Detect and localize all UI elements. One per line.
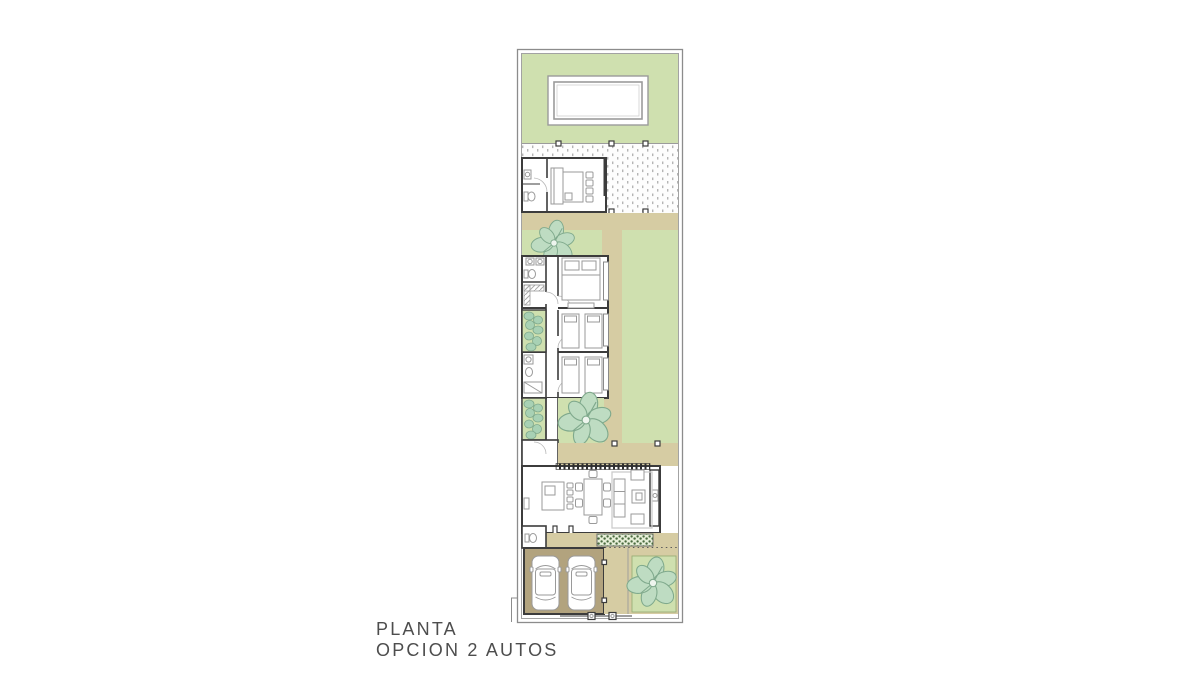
car-2 bbox=[566, 556, 597, 610]
window bbox=[604, 358, 609, 390]
pool bbox=[548, 76, 648, 125]
column bbox=[609, 141, 614, 146]
column bbox=[655, 441, 660, 446]
post bbox=[602, 560, 607, 565]
floor-plan-drawing bbox=[0, 0, 1200, 675]
floor-plan-page: PLANTA OPCION 2 AUTOS bbox=[0, 0, 1200, 675]
post bbox=[602, 598, 607, 603]
bedroom-block bbox=[522, 256, 609, 398]
column bbox=[556, 141, 561, 146]
living-dining-kitchen bbox=[522, 464, 660, 536]
sliding-door-track bbox=[556, 464, 650, 470]
front-garden bbox=[626, 548, 678, 614]
column bbox=[643, 141, 648, 146]
side-garden bbox=[622, 230, 678, 443]
planter-strip bbox=[597, 534, 653, 546]
drawing-title-line2: OPCION 2 AUTOS bbox=[376, 640, 559, 661]
garage bbox=[524, 548, 604, 614]
garden-path bbox=[602, 230, 622, 256]
window bbox=[604, 314, 609, 346]
studio-room bbox=[522, 158, 606, 212]
drawing-title-line1: PLANTA bbox=[376, 619, 559, 640]
powder-room bbox=[522, 526, 546, 548]
garage-side-path bbox=[604, 548, 630, 614]
master-bedroom bbox=[562, 258, 600, 308]
terrace bbox=[558, 441, 678, 466]
planter-1 bbox=[522, 310, 546, 352]
armchair bbox=[631, 470, 644, 480]
armchair bbox=[631, 514, 644, 524]
car-1 bbox=[530, 556, 561, 610]
window bbox=[604, 262, 609, 300]
column bbox=[612, 441, 617, 446]
drawing-title: PLANTA OPCION 2 AUTOS bbox=[376, 619, 559, 661]
sofa bbox=[614, 479, 625, 517]
planter-2 bbox=[522, 398, 546, 440]
studio-closet bbox=[551, 168, 563, 204]
entry-vestibule bbox=[522, 440, 558, 466]
